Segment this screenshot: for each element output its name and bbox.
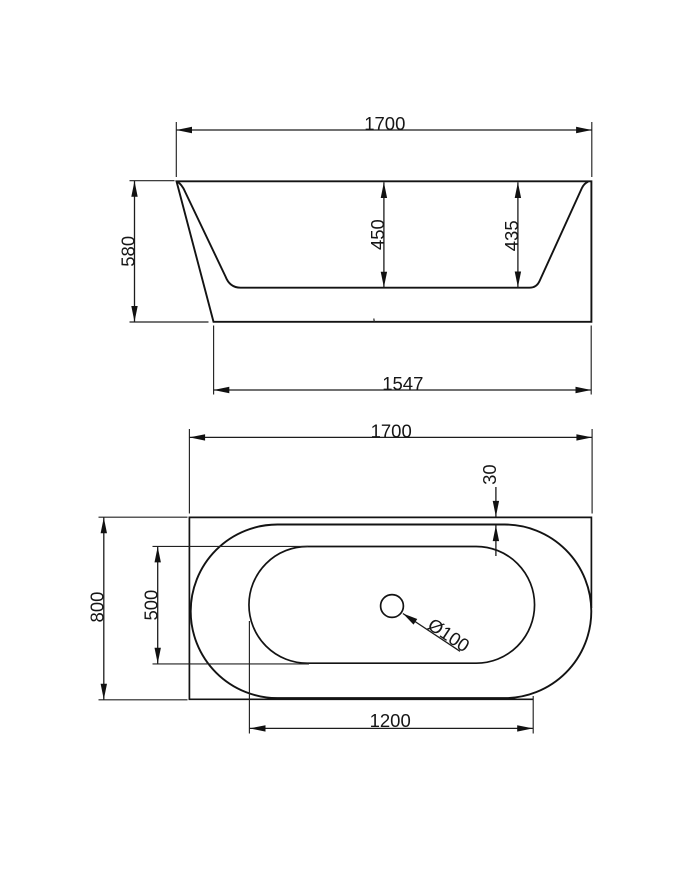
svg-text:1200: 1200 — [370, 710, 411, 731]
svg-text:800: 800 — [87, 592, 108, 623]
svg-text:30: 30 — [479, 464, 500, 485]
svg-text:1547: 1547 — [382, 373, 423, 394]
svg-text:Ø100: Ø100 — [424, 614, 473, 656]
svg-text:435: 435 — [501, 220, 522, 251]
svg-text:450: 450 — [367, 219, 388, 250]
svg-text:1700: 1700 — [371, 421, 412, 442]
svg-text:500: 500 — [141, 590, 162, 621]
svg-text:1700: 1700 — [364, 113, 405, 134]
svg-text:580: 580 — [117, 236, 138, 267]
